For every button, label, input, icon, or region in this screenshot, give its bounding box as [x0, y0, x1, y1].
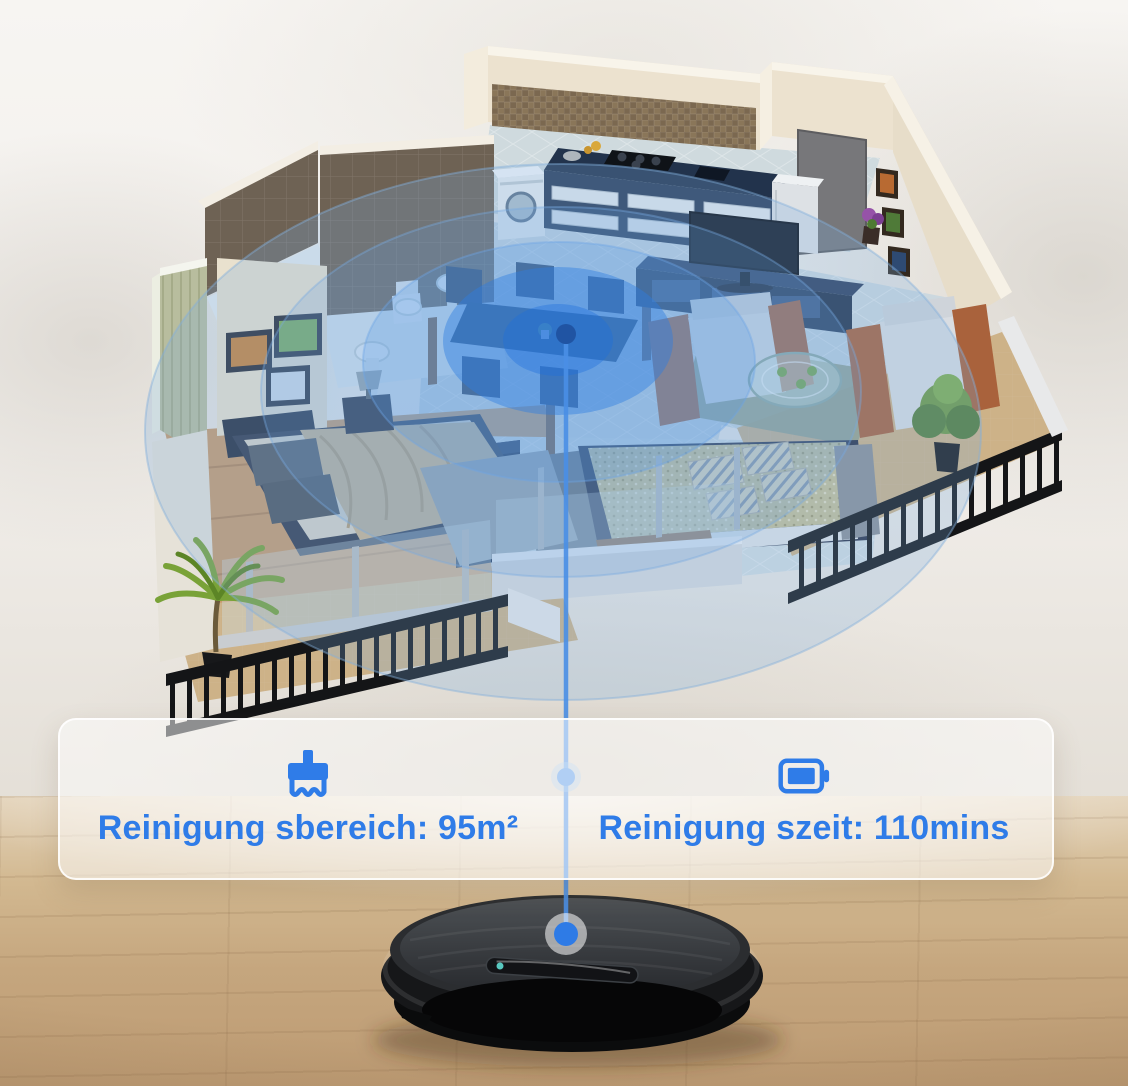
brush-icon — [282, 750, 334, 802]
stat-cleaning-area: Reinigung sbereich: 95m² — [60, 720, 556, 878]
stat-cleaning-time: Reinigung szeit: 110mins — [556, 720, 1052, 878]
radar-overlay — [145, 164, 981, 700]
signal-origin-dot — [556, 324, 576, 344]
battery-icon — [778, 750, 830, 802]
stats-banner: Reinigung sbereich: 95m² Reinigung szeit… — [58, 718, 1054, 880]
cleaning-area-text: Reinigung sbereich: 95m² — [98, 809, 518, 848]
scene-illustration — [0, 0, 1128, 1086]
cleaning-time-text: Reinigung szeit: 110mins — [598, 809, 1009, 848]
robot-marker-dot — [554, 922, 578, 946]
